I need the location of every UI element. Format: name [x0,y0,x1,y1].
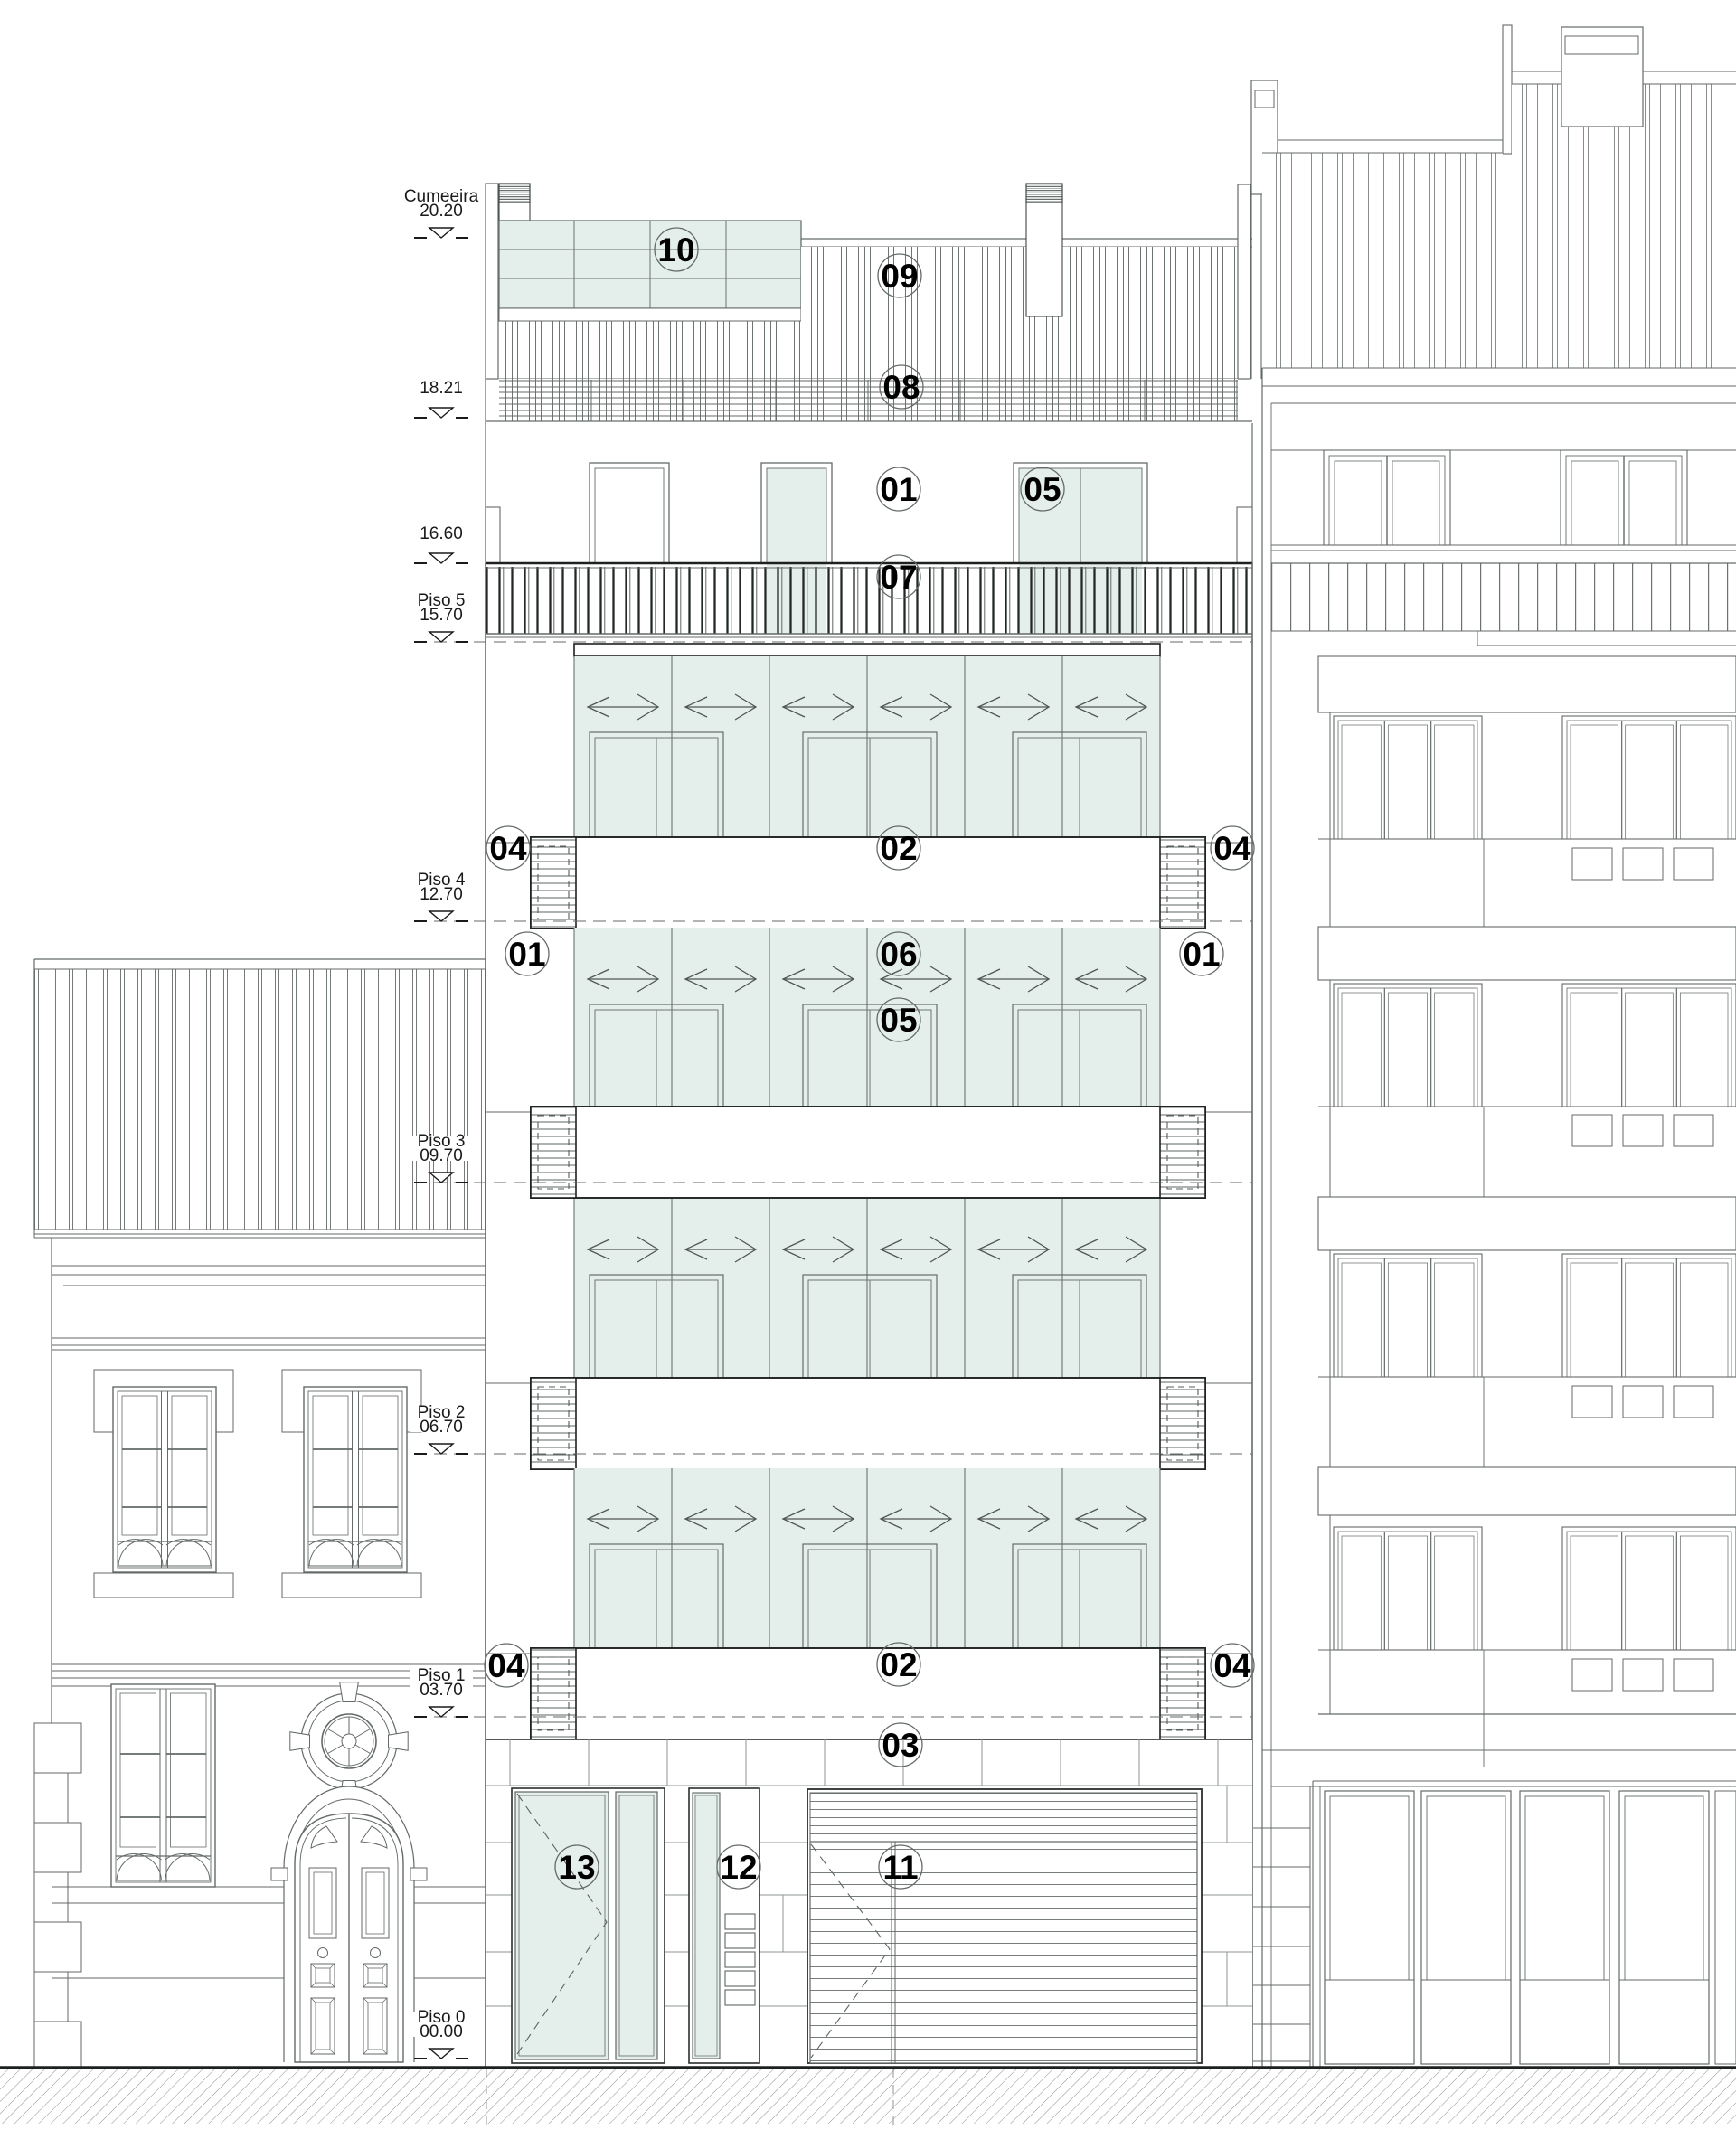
svg-text:01: 01 [880,471,917,508]
svg-text:05: 05 [880,1002,917,1039]
svg-text:04: 04 [489,830,527,867]
svg-text:03: 03 [882,1727,919,1764]
svg-text:11: 11 [882,1849,918,1886]
svg-text:04: 04 [1213,1647,1251,1684]
svg-text:02: 02 [880,830,917,867]
svg-text:02: 02 [880,1646,917,1683]
svg-text:12.70: 12.70 [420,885,463,904]
svg-text:06.70: 06.70 [420,1418,463,1437]
svg-text:15.70: 15.70 [420,606,463,625]
svg-text:05: 05 [1024,471,1061,508]
svg-text:06: 06 [880,936,917,973]
svg-text:03.70: 03.70 [420,1681,463,1700]
svg-text:00.00: 00.00 [420,2022,463,2041]
svg-text:16.60: 16.60 [420,524,463,543]
svg-text:12: 12 [720,1849,757,1886]
svg-text:18.21: 18.21 [420,379,463,398]
svg-text:04: 04 [1213,830,1251,867]
svg-text:13: 13 [558,1849,595,1886]
svg-text:07: 07 [880,559,917,596]
svg-text:01: 01 [508,936,545,973]
svg-text:04: 04 [487,1647,525,1684]
svg-text:09: 09 [881,258,918,295]
svg-text:08: 08 [882,369,920,406]
svg-text:01: 01 [1183,936,1220,973]
svg-text:09.70: 09.70 [420,1146,463,1165]
svg-text:20.20: 20.20 [420,202,463,221]
svg-text:10: 10 [657,231,694,269]
